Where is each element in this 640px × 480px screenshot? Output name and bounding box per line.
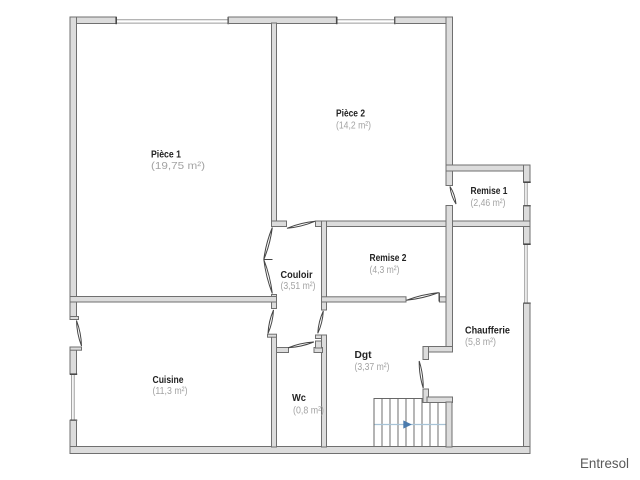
- svg-text:(5,8 m²): (5,8 m²): [465, 336, 496, 348]
- svg-text:Pièce 2: Pièce 2: [336, 108, 365, 120]
- svg-text:(3,37 m²): (3,37 m²): [355, 361, 390, 373]
- svg-text:Remise 2: Remise 2: [370, 252, 407, 264]
- svg-text:(14,2 m²): (14,2 m²): [336, 119, 371, 131]
- svg-text:Chaufferie: Chaufferie: [465, 325, 510, 337]
- svg-text:Cuisine: Cuisine: [153, 374, 184, 386]
- svg-text:Remise 1: Remise 1: [471, 185, 508, 197]
- svg-text:(2,46 m²): (2,46 m²): [471, 197, 506, 209]
- svg-text:(3,51 m²): (3,51 m²): [281, 280, 316, 292]
- svg-text:Wc: Wc: [292, 392, 306, 404]
- svg-text:Dgt: Dgt: [355, 349, 372, 361]
- svg-text:(11,3 m²): (11,3 m²): [153, 385, 188, 397]
- svg-text:(19,75 m²): (19,75 m²): [151, 160, 205, 172]
- svg-text:(0,8 m²): (0,8 m²): [293, 405, 324, 417]
- svg-text:(4,3 m²): (4,3 m²): [370, 264, 400, 276]
- svg-text:Pièce 1: Pièce 1: [151, 149, 181, 161]
- svg-text:Entresol: Entresol: [580, 455, 629, 471]
- svg-text:Couloir: Couloir: [281, 269, 313, 281]
